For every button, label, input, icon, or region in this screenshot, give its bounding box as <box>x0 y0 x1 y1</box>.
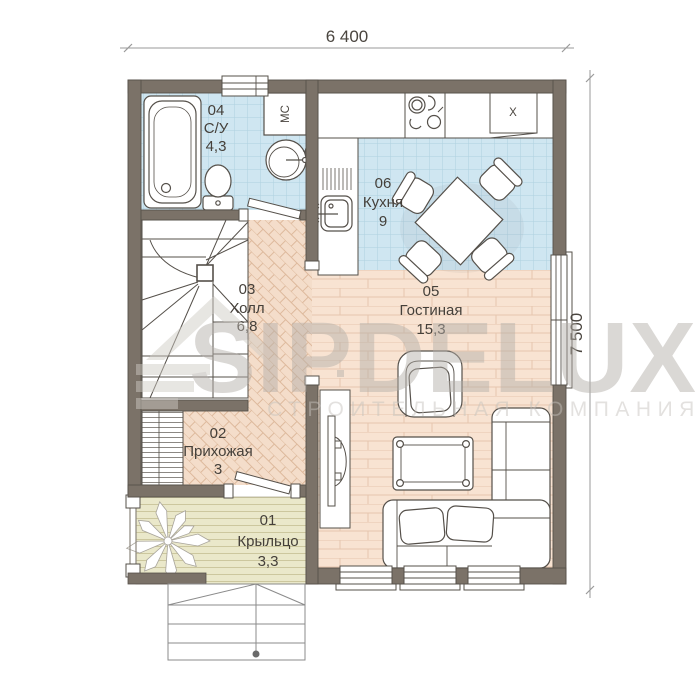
wall-mid-upper <box>306 80 318 270</box>
wardrobe <box>142 411 183 485</box>
coffee-table <box>393 437 473 490</box>
room-number: 04 <box>208 102 225 119</box>
bathtub <box>144 96 201 208</box>
room-area: 9 <box>379 213 387 230</box>
room-name: С/У <box>204 120 229 137</box>
wall-bottom-entry-left <box>128 485 232 497</box>
room-area: 4,3 <box>206 138 227 155</box>
window-bottom-3 <box>464 566 524 590</box>
room-number: 03 <box>239 281 256 298</box>
room-area: 3,3 <box>258 553 279 570</box>
watermark-tagline: СТРОИТЕЛЬНАЯ КОМПАНИЯ <box>267 398 700 421</box>
wall-top <box>128 80 566 93</box>
room-name: Кухня <box>363 194 403 211</box>
dimension-top: 6 400 <box>120 27 574 52</box>
sofa-pillow <box>446 505 494 542</box>
room-number: 06 <box>375 175 392 192</box>
floor-plan-page: МС <box>0 0 700 697</box>
wall-bath-bottom <box>141 210 247 220</box>
watermark: SIPDELUX СТРОИТЕЛЬНАЯ КОМПАНИЯ <box>136 296 700 421</box>
room-name: Прихожая <box>183 443 253 460</box>
fridge-label: Х <box>509 107 517 119</box>
wall-left <box>128 80 141 497</box>
room-number: 05 <box>423 283 440 300</box>
washing-machine: МС <box>264 93 306 135</box>
room-number: 01 <box>260 512 277 529</box>
porch-edge-bar <box>128 573 206 584</box>
toilet <box>203 165 233 210</box>
entrance-steps <box>168 584 305 660</box>
floor-plan-svg: МС <box>0 0 700 697</box>
window-bottom-2 <box>400 566 460 590</box>
window-bottom-1 <box>336 566 396 590</box>
room-area: 3 <box>214 461 222 478</box>
window-top <box>222 76 268 96</box>
dimension-width-text: 6 400 <box>326 27 369 46</box>
sofa-pillow <box>399 507 446 545</box>
room-name: Крыльцо <box>237 533 298 550</box>
room-number: 02 <box>210 425 227 442</box>
washing-machine-label: МС <box>280 105 292 123</box>
